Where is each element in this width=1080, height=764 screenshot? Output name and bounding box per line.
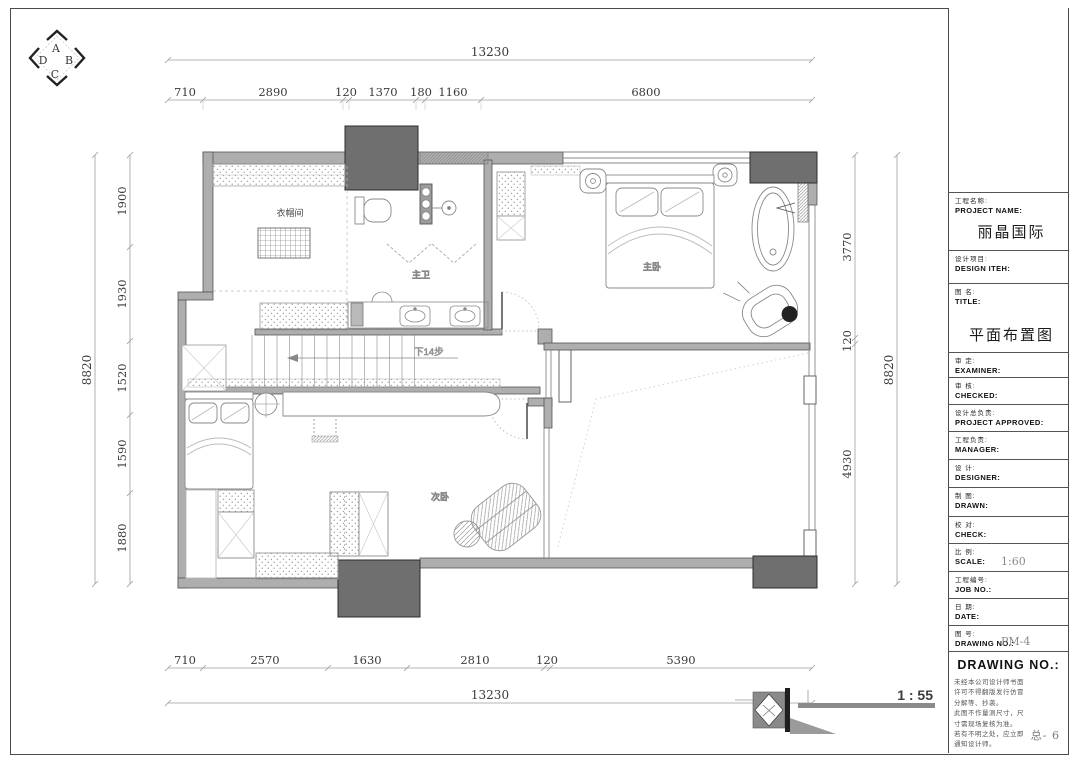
title-block: 工程名称: PROJECT NAME: 丽晶国际 设计项目: DESIGN IT… — [948, 8, 1068, 753]
field-examiner: 审 定: EXAMINER: — [949, 353, 1068, 378]
floor-plan: 衣帽间 下14步 — [0, 0, 1080, 764]
titleblock-empty-cell — [949, 8, 1068, 193]
drawing-no-header: DRAWING NO.: — [954, 658, 1063, 672]
svg-text:120: 120 — [840, 330, 854, 352]
svg-text:120: 120 — [335, 85, 357, 99]
window-hatch — [798, 183, 808, 222]
svg-text:2810: 2810 — [460, 653, 489, 667]
scale-value: 1:60 — [1001, 555, 1026, 568]
field-designer: 设 计: DESIGNER: — [949, 460, 1068, 488]
svg-text:180: 180 — [410, 85, 432, 99]
svg-text:710: 710 — [174, 85, 196, 99]
svg-text:1880: 1880 — [115, 523, 129, 552]
scale-bar: 1 : 55 — [735, 687, 935, 734]
svg-text:1520: 1520 — [115, 363, 129, 392]
field-drawing-no: 图 号: DRAWING NO.: PM-4 — [949, 626, 1068, 652]
room-label-second-bedroom: 次卧 — [431, 491, 449, 502]
wall-openings — [559, 350, 816, 560]
vanity — [260, 292, 488, 330]
field-manager: 工程负责: MANAGER: — [949, 432, 1068, 460]
drawing-sheet: 衣帽间 下14步 — [0, 0, 1080, 764]
stairs-direction-label: 下14步 — [414, 347, 444, 358]
compass-icon: A B C D — [30, 31, 84, 85]
field-title: 图 名: TITLE: 平面布置图 — [949, 284, 1068, 353]
compass-letter-a: A — [51, 42, 61, 55]
svg-text:710: 710 — [174, 653, 196, 667]
field-date: 日 期: DATE: — [949, 599, 1068, 626]
compass-letter-d: D — [39, 54, 48, 67]
svg-text:13230: 13230 — [471, 45, 509, 59]
svg-text:2890: 2890 — [258, 85, 287, 99]
svg-text:2570: 2570 — [250, 653, 279, 667]
compass-letter-c: C — [51, 68, 59, 81]
field-project-name: 工程名称: PROJECT NAME: 丽晶国际 — [949, 193, 1068, 251]
master-bedroom: 主卧 — [580, 164, 804, 345]
svg-text:3770: 3770 — [840, 232, 854, 261]
second-bedroom: 次卧 — [185, 379, 547, 579]
field-checked: 审 核: CHECKED: — [949, 378, 1068, 405]
sheet-number: 总- 6 — [1031, 727, 1060, 743]
room-label-master-bath: 主卫 — [412, 269, 430, 280]
svg-text:6800: 6800 — [631, 85, 660, 99]
compass-letter-b: B — [65, 54, 73, 67]
field-drawn: 制 图: DRAWN: — [949, 488, 1068, 517]
svg-text:1900: 1900 — [115, 186, 129, 215]
svg-text:1930: 1930 — [115, 279, 129, 308]
scale-label: 1 : 55 — [897, 687, 933, 703]
svg-text:4930: 4930 — [840, 449, 854, 478]
svg-text:13230: 13230 — [471, 688, 509, 702]
room-label-master-bedroom: 主卧 — [643, 261, 661, 272]
field-job-no: 工程编号: JOB NO.: — [949, 572, 1068, 599]
field-project-approved: 设计总负责: PROJECT APPROVED: — [949, 405, 1068, 432]
titleblock-notes-cell: DRAWING NO.: 未经本公司设计师书面 许可不得翻版发行仿冒 分解等、抄… — [949, 652, 1068, 753]
drawing-title-value: 平面布置图 — [955, 324, 1068, 345]
svg-text:1370: 1370 — [368, 85, 397, 99]
svg-text:1160: 1160 — [438, 85, 467, 99]
svg-text:1590: 1590 — [115, 439, 129, 468]
drawing-no-value: PM-4 — [1001, 635, 1030, 648]
room-label-cloakroom: 衣帽间 — [276, 207, 303, 218]
field-scale: 比 例: SCALE: 1:60 — [949, 544, 1068, 572]
svg-text:8820: 8820 — [882, 355, 896, 386]
window-hatch-top — [420, 152, 488, 164]
svg-text:120: 120 — [536, 653, 558, 667]
field-design-item: 设计项目: DESIGN ITEH: — [949, 251, 1068, 284]
svg-text:5390: 5390 — [666, 653, 695, 667]
field-check: 校 对: CHECK: — [949, 517, 1068, 544]
project-name-value: 丽晶国际 — [955, 221, 1068, 242]
svg-text:8820: 8820 — [80, 355, 94, 386]
columns — [338, 126, 817, 617]
svg-text:1630: 1630 — [352, 653, 381, 667]
